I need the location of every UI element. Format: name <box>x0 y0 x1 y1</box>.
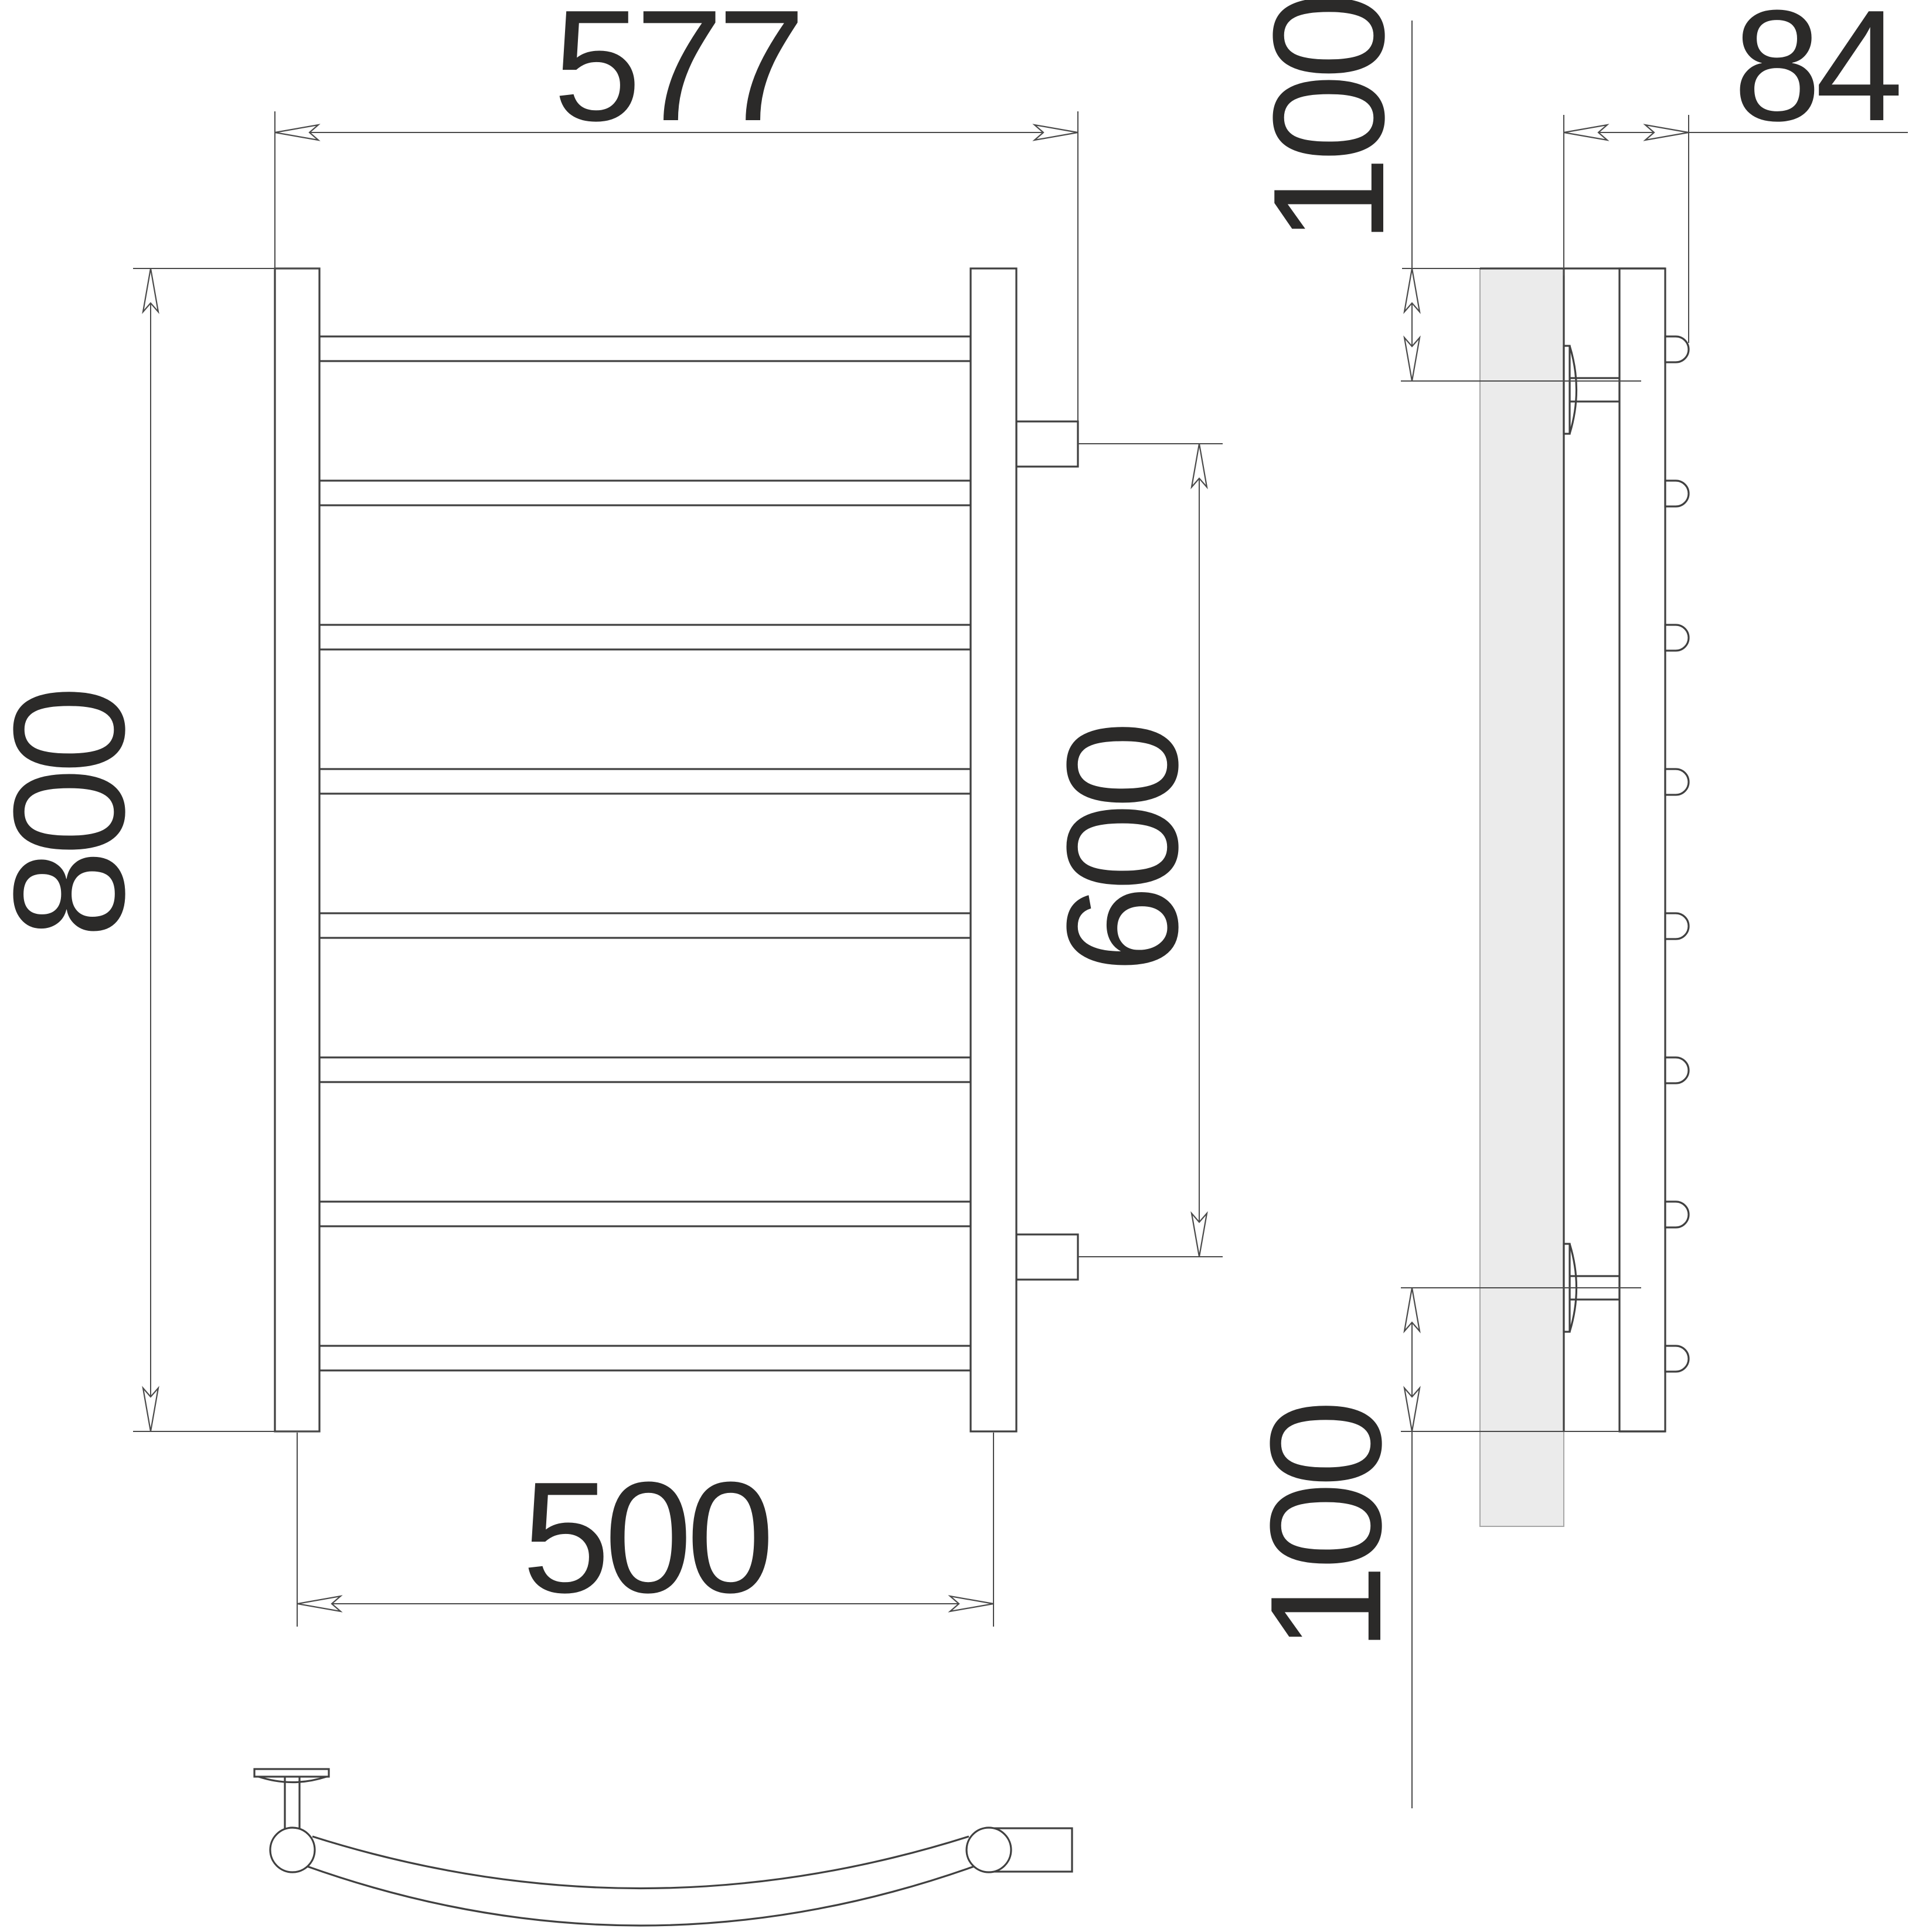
top-view-bracket <box>254 1769 329 1829</box>
rung-end-5 <box>1665 913 1689 939</box>
dim-800-label: 800 <box>0 689 158 938</box>
left-tube-section <box>270 1828 315 1872</box>
front-view <box>275 268 1078 1431</box>
rung-end-6 <box>1665 1057 1689 1083</box>
dim-600-label: 600 <box>1035 724 1211 973</box>
rung-arc-front-edge <box>312 1836 969 1889</box>
rung-end-3 <box>1665 625 1689 651</box>
dim-bottom-offset: 100 <box>1238 1288 1641 1808</box>
collector-tube-profile <box>1619 268 1665 1431</box>
rung-arc-back-edge <box>307 1866 974 1926</box>
rungs <box>319 336 971 1370</box>
upper-bracket <box>1564 346 1619 434</box>
dim-500-label: 500 <box>522 1450 771 1626</box>
towel-rail-technical-drawing: 577 800 500 600 84 <box>0 0 1919 1932</box>
rung-ends <box>1665 336 1689 1372</box>
dim-100-top-label: 100 <box>1241 0 1417 244</box>
rung-1 <box>319 336 971 361</box>
rung-7 <box>319 1202 971 1226</box>
dim-577-label: 577 <box>553 0 799 154</box>
rung-end-2 <box>1665 481 1689 506</box>
rung-end-7 <box>1665 1202 1689 1227</box>
rung-5 <box>319 913 971 938</box>
dim-mounting-width: 500 <box>297 1433 993 1627</box>
rung-end-4 <box>1665 769 1689 795</box>
upper-connector-stub <box>1016 421 1078 467</box>
right-tube-section <box>967 1828 1011 1872</box>
rung-2 <box>319 481 971 505</box>
left-collector <box>275 268 319 1431</box>
bracket-flange-plate <box>254 1769 329 1777</box>
rung-end-8 <box>1665 1346 1689 1372</box>
dim-84-label: 84 <box>1733 0 1900 154</box>
side-view <box>1480 268 1689 1526</box>
wall-strip <box>1480 268 1564 1526</box>
dim-overall-height: 800 <box>0 268 319 1431</box>
rung-end-1 <box>1665 336 1689 362</box>
rung-8 <box>319 1346 971 1370</box>
top-view <box>254 1769 1072 1926</box>
dim-depth: 84 <box>1564 0 1908 343</box>
rung-4 <box>319 769 971 794</box>
dim-top-offset: 100 <box>1241 0 1641 381</box>
rung-6 <box>319 1057 971 1082</box>
dim-connection-height: 600 <box>1035 444 1223 1257</box>
rung-3 <box>319 625 971 649</box>
right-collector <box>971 268 1016 1431</box>
upper-bracket-flange <box>1564 346 1570 434</box>
dim-100-bottom-label: 100 <box>1238 1403 1414 1652</box>
lower-connector-stub <box>1016 1234 1078 1280</box>
